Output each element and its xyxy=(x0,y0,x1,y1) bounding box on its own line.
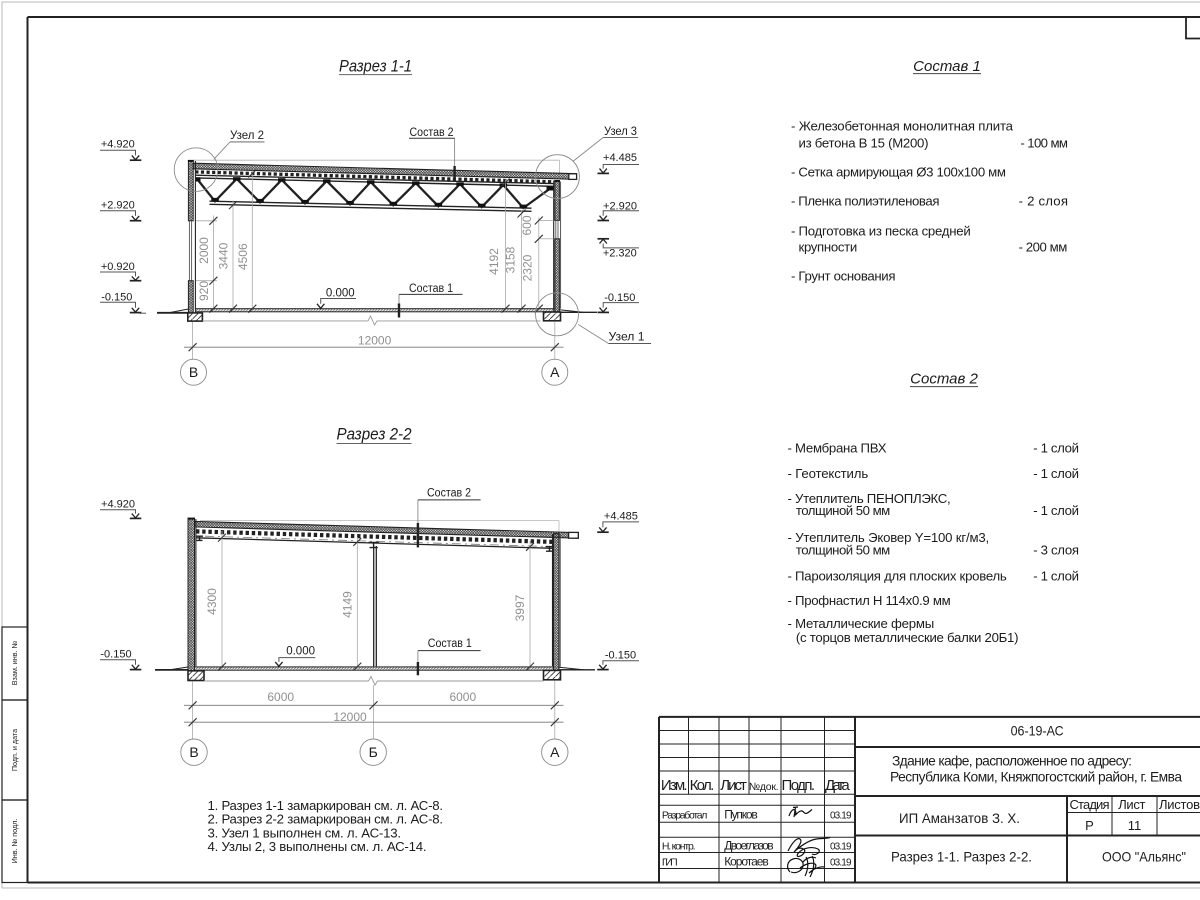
svg-text:-0.150: -0.150 xyxy=(604,292,635,304)
svg-text:ГИП: ГИП xyxy=(662,857,678,869)
svg-text:Пупков: Пупков xyxy=(724,808,758,822)
svg-text:Изм.: Изм. xyxy=(661,777,688,794)
svg-text:+0.920: +0.920 xyxy=(101,261,135,273)
svg-text:Н. контр.: Н. контр. xyxy=(662,841,696,853)
svg-text:Подп.: Подп. xyxy=(782,777,816,794)
svg-text:+2.920: +2.920 xyxy=(101,200,135,212)
svg-text:Состав 1: Состав 1 xyxy=(428,638,472,650)
svg-text:0.000: 0.000 xyxy=(286,646,315,658)
svg-text:Состав 2: Состав 2 xyxy=(410,127,454,139)
svg-text:4300: 4300 xyxy=(205,588,219,615)
svg-text:Подп. и дата: Подп. и дата xyxy=(10,729,19,771)
svg-text:- 2 слоя: - 2 слоя xyxy=(1019,194,1068,209)
svg-text:3158: 3158 xyxy=(504,246,518,273)
svg-text:03.19: 03.19 xyxy=(830,811,852,822)
svg-text:Состав 1: Состав 1 xyxy=(913,58,981,75)
svg-text:Коротаев: Коротаев xyxy=(724,855,769,869)
svg-text:Состав 2: Состав 2 xyxy=(427,488,471,500)
svg-text:03.19: 03.19 xyxy=(830,858,852,869)
svg-text:+4.920: +4.920 xyxy=(101,138,135,150)
svg-text:Дата: Дата xyxy=(825,777,850,794)
svg-text:- 200 мм: - 200 мм xyxy=(1019,240,1068,255)
svg-text:Лист: Лист xyxy=(1118,797,1145,812)
svg-text:4149: 4149 xyxy=(340,591,354,618)
svg-text:- 1 слой: - 1 слой xyxy=(1033,503,1079,518)
svg-text:- 1 слой: - 1 слой xyxy=(1033,466,1079,481)
svg-text:В: В xyxy=(189,364,198,380)
svg-text:- Мембрана ПВХ: - Мембрана ПВХ xyxy=(788,441,887,456)
svg-text:-0.150: -0.150 xyxy=(605,649,636,661)
svg-text:- Подготовка из песка средней: - Подготовка из песка средней xyxy=(791,224,971,239)
svg-text:600: 600 xyxy=(520,215,534,235)
svg-text:Разрез 2-2: Разрез 2-2 xyxy=(337,424,412,443)
svg-text:В: В xyxy=(189,744,198,760)
svg-text:ООО "Альянс": ООО "Альянс" xyxy=(1102,849,1186,865)
svg-text:- Пароизоляция для плоских кро: - Пароизоляция для плоских кровель xyxy=(788,569,1007,584)
svg-text:- Профнастил Н 114х0.9 мм: - Профнастил Н 114х0.9 мм xyxy=(788,593,951,608)
svg-text:12000: 12000 xyxy=(333,710,367,724)
svg-text:920: 920 xyxy=(197,281,211,301)
svg-text:+2.320: +2.320 xyxy=(603,247,637,259)
svg-text:4192: 4192 xyxy=(487,248,501,275)
svg-text:2000: 2000 xyxy=(197,237,211,264)
svg-text:(с торцов металлические балки: (с торцов металлические балки 20Б1) xyxy=(796,630,1019,645)
svg-text:+4.485: +4.485 xyxy=(604,510,638,522)
svg-text:- 1 слой: - 1 слой xyxy=(1033,441,1079,456)
svg-text:6000: 6000 xyxy=(449,690,476,704)
svg-text:Взам. инв. №: Взам. инв. № xyxy=(10,640,19,685)
svg-text:- 3 слоя: - 3 слоя xyxy=(1033,543,1079,558)
svg-text:4506: 4506 xyxy=(236,243,250,270)
svg-text:Разрез 1-1. Разрез 2-2.: Разрез 1-1. Разрез 2-2. xyxy=(891,849,1032,865)
svg-text:- Геотекстиль: - Геотекстиль xyxy=(788,466,869,481)
svg-text:- Сетка армирующая Ø3 100х100: - Сетка армирующая Ø3 100х100 мм xyxy=(791,165,1006,180)
svg-text:Б: Б xyxy=(369,744,378,760)
svg-text:из бетона В 15 (М200): из бетона В 15 (М200) xyxy=(799,136,929,151)
svg-text:- Пленка полиэтиленовая: - Пленка полиэтиленовая xyxy=(791,194,940,209)
svg-text:4. Узлы 2, 3 выполнены см. л.: 4. Узлы 2, 3 выполнены см. л. АС-14. xyxy=(208,839,427,854)
svg-text:- 1 слой: - 1 слой xyxy=(1033,569,1079,584)
svg-text:толщиной 50 мм: толщиной 50 мм xyxy=(796,503,890,518)
svg-text:Узел 2: Узел 2 xyxy=(230,130,264,142)
svg-text:2. Разрез 2-2 замаркирован см.: 2. Разрез 2-2 замаркирован см. л. АС-8. xyxy=(208,812,444,827)
svg-text:Здание кафе, расположенное по: Здание кафе, расположенное по адресу: xyxy=(892,754,1132,769)
svg-text:- Металлические фермы: - Металлические фермы xyxy=(788,616,935,631)
svg-text:3440: 3440 xyxy=(217,242,231,269)
svg-text:Разработал: Разработал xyxy=(662,810,708,822)
svg-text:ИП Аманзатов З. Х.: ИП Аманзатов З. Х. xyxy=(899,810,1020,826)
svg-text:Двоеглазов: Двоеглазов xyxy=(724,839,773,853)
svg-text:Состав 2: Состав 2 xyxy=(910,371,978,388)
svg-text:А: А xyxy=(550,364,560,380)
svg-text:- Железобетонная монолитная п: - Железобетонная монолитная плита xyxy=(791,119,1014,134)
svg-text:12000: 12000 xyxy=(358,334,392,348)
svg-text:+4.485: +4.485 xyxy=(603,152,637,164)
svg-text:крупности: крупности xyxy=(799,240,858,255)
svg-text:Р: Р xyxy=(1085,818,1094,833)
svg-text:Состав 1: Состав 1 xyxy=(409,283,453,295)
svg-text:А: А xyxy=(550,744,560,760)
svg-text:Лист: Лист xyxy=(720,777,747,794)
svg-text:Кол.: Кол. xyxy=(690,777,715,794)
svg-text:Республика Коми, Княжпогостски: Республика Коми, Княжпогостский район, г… xyxy=(890,770,1182,785)
svg-text:Узел 3: Узел 3 xyxy=(604,126,637,138)
svg-text:-0.150: -0.150 xyxy=(100,649,131,661)
svg-text:- 100 мм: - 100 мм xyxy=(1020,136,1068,151)
svg-text:06-19-АС: 06-19-АС xyxy=(1011,723,1064,739)
svg-text:03.19: 03.19 xyxy=(830,842,852,853)
svg-text:2320: 2320 xyxy=(520,254,534,281)
svg-text:0.000: 0.000 xyxy=(326,287,355,299)
svg-text:-0.150: -0.150 xyxy=(101,292,132,304)
svg-text:Узел 1: Узел 1 xyxy=(609,332,645,344)
svg-text:- Грунт основания: - Грунт основания xyxy=(791,269,896,284)
svg-text:№док.: №док. xyxy=(749,781,779,793)
svg-text:Разрез 1-1: Разрез 1-1 xyxy=(339,57,412,76)
svg-text:Инв. № подл.: Инв. № подл. xyxy=(10,819,19,864)
svg-text:3997: 3997 xyxy=(513,594,527,621)
svg-text:6000: 6000 xyxy=(267,690,294,704)
svg-text:11: 11 xyxy=(1128,818,1142,833)
svg-text:+4.920: +4.920 xyxy=(101,498,135,510)
svg-text:Листов: Листов xyxy=(1159,797,1200,812)
svg-text:толщиной 50 мм: толщиной 50 мм xyxy=(796,543,890,558)
svg-text:Стадия: Стадия xyxy=(1070,797,1110,812)
